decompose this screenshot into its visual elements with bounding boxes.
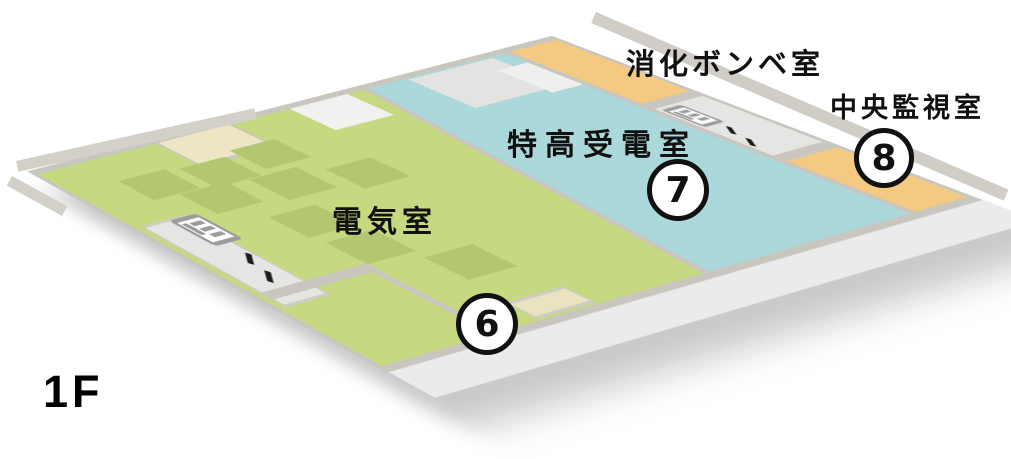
equipment-pad [424,244,517,280]
room-marker-7[interactable]: 7 [647,159,709,221]
label-fire-cylinder-room: 消化ボンベ室 [626,41,824,83]
equipment-pad [249,167,338,200]
floor-map: ↑↓ ↑↓ [0,0,1011,459]
floor-level-label: 1F [43,366,104,418]
label-electrical-room: 電気室 [332,197,437,241]
marker-number: 7 [665,170,690,211]
room-marker-8[interactable]: 8 [854,128,914,188]
equipment-pad [325,157,410,188]
marker-number: 8 [871,138,896,179]
label-high-voltage-room: 特高受電室 [507,120,697,164]
marker-number: 6 [474,304,499,345]
elevator-icon-group: ↑↓ [166,212,195,220]
room-marker-6[interactable]: 6 [456,293,518,355]
label-central-monitoring-room: 中央監視室 [830,86,985,125]
